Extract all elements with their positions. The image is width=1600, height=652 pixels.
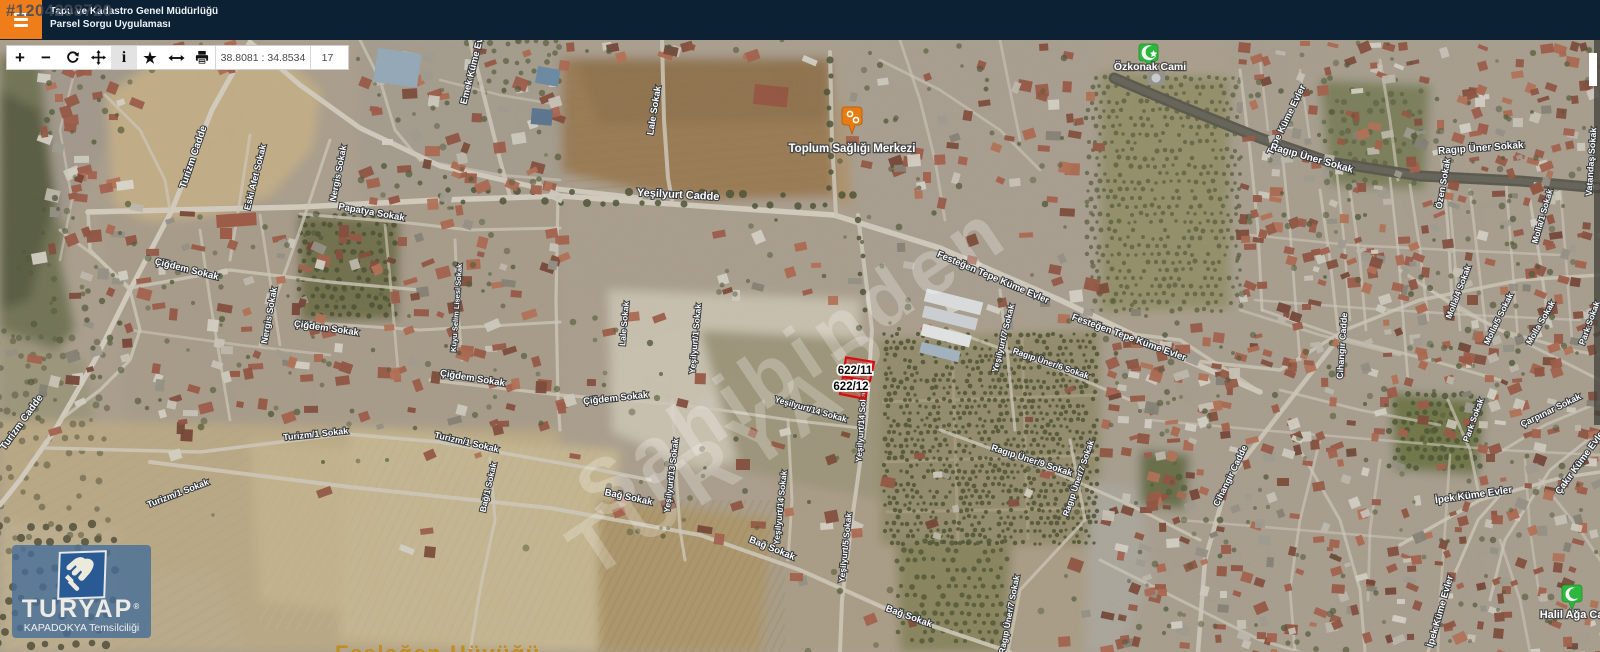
svg-text:Halil Ağa Cami: Halil Ağa Cami <box>1540 609 1600 621</box>
svg-text:Feşlağan Hüyüğü: Feşlağan Hüyüğü <box>335 641 541 652</box>
svg-text:622/11: 622/11 <box>838 365 873 377</box>
svg-text:Özkonak Cami: Özkonak Cami <box>1114 60 1186 73</box>
svg-text:Toplum Sağlığı Merkezi: Toplum Sağlığı Merkezi <box>789 143 916 155</box>
svg-text:622/12: 622/12 <box>833 381 868 393</box>
